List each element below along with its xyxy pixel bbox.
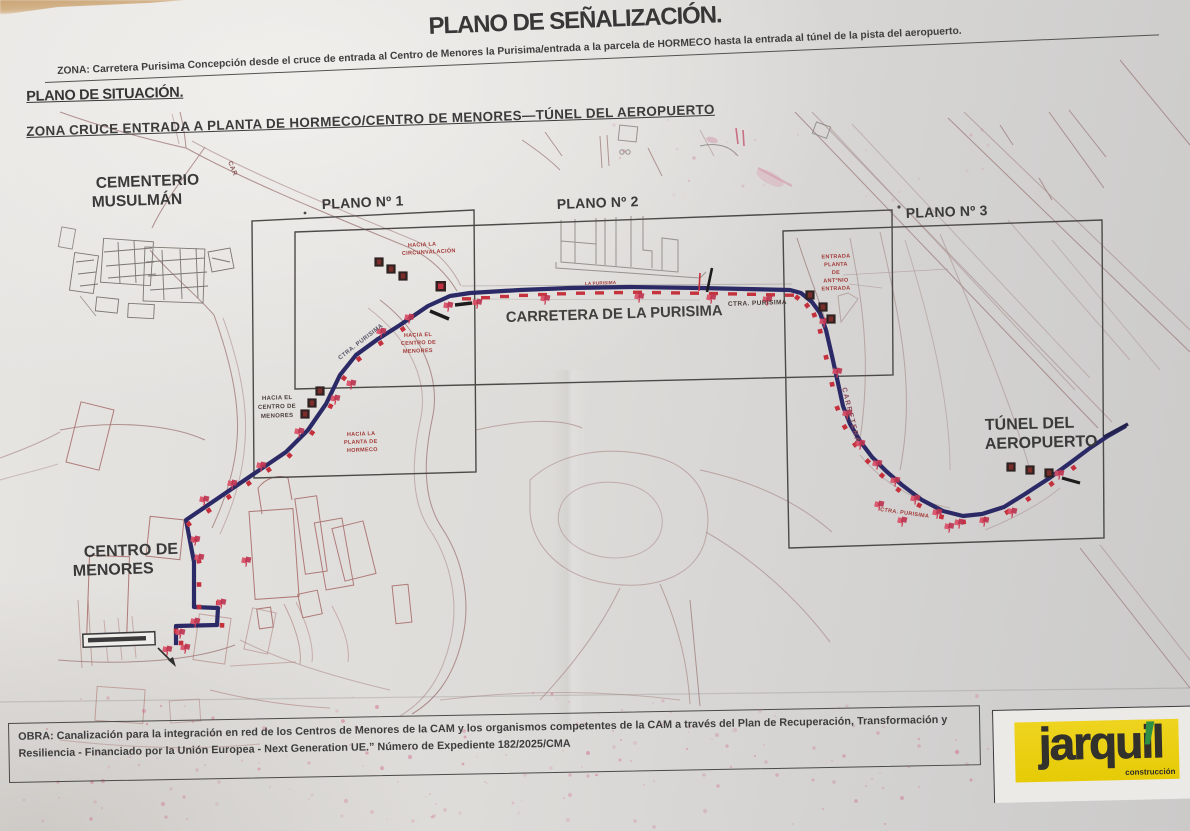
svg-text:DE: DE bbox=[832, 270, 840, 276]
svg-text:CAR: CAR bbox=[226, 160, 238, 177]
svg-text:ENTRADA: ENTRADA bbox=[821, 285, 850, 292]
svg-text:HACIA EL: HACIA EL bbox=[262, 395, 293, 402]
svg-text:HACIA LA: HACIA LA bbox=[408, 242, 437, 249]
svg-text:HORMECO: HORMECO bbox=[347, 447, 378, 454]
svg-text:ENTRADA: ENTRADA bbox=[821, 253, 850, 260]
svg-text:CENTRO DE: CENTRO DE bbox=[258, 404, 296, 411]
svg-text:HACIA LA: HACIA LA bbox=[347, 431, 376, 438]
svg-text:TÚNEL DEL: TÚNEL DEL bbox=[985, 413, 1075, 434]
svg-text:CARRETERA DE LA PURISIMA: CARRETERA DE LA PURISIMA bbox=[506, 303, 723, 326]
svg-text:ANTºNIO: ANTºNIO bbox=[823, 278, 849, 285]
svg-text:MENORES: MENORES bbox=[73, 560, 155, 580]
svg-text:CENTRO DE: CENTRO DE bbox=[84, 541, 179, 561]
svg-text:PLANTA: PLANTA bbox=[824, 262, 848, 269]
svg-text:CTRA. PURISIMA: CTRA. PURISIMA bbox=[338, 323, 385, 362]
svg-text:PLANO Nº 2: PLANO Nº 2 bbox=[557, 193, 639, 212]
svg-text:PLANO Nº 3: PLANO Nº 3 bbox=[906, 202, 988, 221]
svg-text:CENTRO DE: CENTRO DE bbox=[401, 340, 436, 347]
svg-text:MUSULMÁN: MUSULMÁN bbox=[92, 191, 183, 211]
svg-text:AEROPUERTO: AEROPUERTO bbox=[985, 433, 1098, 453]
svg-text:CEMENTERIO: CEMENTERIO bbox=[96, 171, 200, 192]
svg-text:PLANTA DE: PLANTA DE bbox=[344, 439, 378, 446]
svg-text:PLANO Nº 1: PLANO Nº 1 bbox=[321, 192, 403, 212]
svg-text:MENORES: MENORES bbox=[403, 348, 433, 355]
svg-text:CTRA. PURISIMA: CTRA. PURISIMA bbox=[728, 299, 787, 308]
svg-text:MENORES: MENORES bbox=[261, 413, 294, 420]
svg-text:HACIA EL: HACIA EL bbox=[404, 332, 433, 339]
